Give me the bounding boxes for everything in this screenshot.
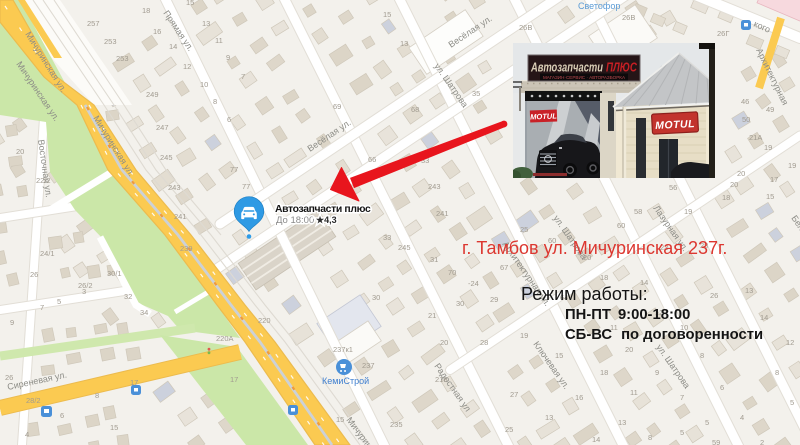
svg-text:9: 9: [10, 318, 14, 327]
svg-text:15: 15: [186, 0, 194, 7]
svg-text:КемиСтрой: КемиСтрой: [322, 376, 369, 386]
svg-text:MOTUL: MOTUL: [655, 118, 695, 132]
svg-text:9: 9: [226, 53, 230, 62]
svg-text:26Г: 26Г: [717, 29, 729, 38]
svg-text:68: 68: [411, 105, 419, 114]
svg-text:220А: 220А: [216, 334, 234, 343]
svg-text:46: 46: [741, 97, 749, 106]
svg-text:18: 18: [600, 368, 608, 377]
svg-text:3: 3: [82, 287, 86, 296]
svg-text:20: 20: [625, 345, 633, 354]
svg-text:218: 218: [435, 375, 448, 384]
svg-text:253: 253: [116, 54, 129, 63]
svg-text:241: 241: [174, 212, 187, 221]
svg-text:MOTUL: MOTUL: [530, 112, 557, 122]
svg-text:6: 6: [60, 411, 64, 420]
svg-text:18: 18: [142, 6, 150, 15]
svg-text:67: 67: [500, 263, 508, 272]
svg-text:59: 59: [712, 438, 720, 445]
svg-text:СБ-ВСпо договоренности: СБ-ВСпо договоренности: [565, 327, 763, 343]
svg-text:★4,3: ★4,3: [316, 215, 337, 225]
svg-text:9: 9: [655, 368, 659, 377]
svg-text:5: 5: [705, 418, 709, 427]
svg-text:28: 28: [480, 338, 488, 347]
svg-text:ПН-ПТ9:00-18:00: ПН-ПТ9:00-18:00: [565, 307, 690, 323]
svg-text:13: 13: [545, 413, 553, 422]
svg-text:21: 21: [428, 311, 436, 320]
svg-text:До 18:00: До 18:00: [276, 215, 314, 226]
svg-text:17: 17: [230, 375, 238, 384]
svg-text:25: 25: [505, 425, 513, 434]
svg-text:5: 5: [680, 428, 684, 437]
svg-text:8: 8: [700, 351, 704, 360]
svg-text:243: 243: [168, 183, 181, 192]
svg-text:15: 15: [555, 351, 563, 360]
svg-text:26: 26: [710, 291, 718, 300]
svg-text:12: 12: [183, 62, 191, 71]
svg-text:20: 20: [16, 147, 24, 156]
svg-text:10: 10: [200, 80, 208, 89]
svg-text:249: 249: [146, 90, 159, 99]
svg-text:6: 6: [227, 115, 231, 124]
svg-text:8: 8: [213, 97, 217, 106]
svg-text:11: 11: [215, 36, 223, 45]
svg-text:26В: 26В: [519, 23, 532, 32]
svg-text:4: 4: [25, 430, 29, 439]
svg-text:31: 31: [430, 255, 438, 264]
svg-text:69: 69: [333, 102, 341, 111]
svg-text:220: 220: [258, 316, 271, 325]
svg-text:г. Тамбов ул. Мичуринская 237г: г. Тамбов ул. Мичуринская 237г.: [462, 238, 727, 258]
svg-text:56: 56: [669, 183, 677, 192]
svg-text:5: 5: [57, 297, 61, 306]
svg-text:28/2: 28/2: [26, 396, 41, 405]
svg-text:-24: -24: [468, 279, 479, 288]
svg-text:237к1: 237к1: [333, 345, 353, 354]
svg-text:245: 245: [160, 153, 173, 162]
svg-text:66: 66: [368, 155, 376, 164]
svg-text:32: 32: [124, 292, 132, 301]
svg-text:19: 19: [520, 331, 528, 340]
svg-text:8: 8: [648, 433, 652, 442]
svg-text:7: 7: [40, 303, 44, 312]
svg-text:77: 77: [242, 182, 250, 191]
svg-text:МАГАЗИН·СЕРВИС · АВТОРАЗБОРКА: МАГАЗИН·СЕРВИС · АВТОРАЗБОРКА: [543, 75, 626, 80]
svg-text:60: 60: [617, 221, 625, 230]
svg-text:15: 15: [383, 10, 391, 19]
svg-text:20: 20: [737, 169, 745, 178]
svg-text:7: 7: [241, 72, 245, 81]
svg-text:30: 30: [372, 293, 380, 302]
svg-text:77: 77: [230, 165, 238, 174]
svg-text:49: 49: [766, 105, 774, 114]
svg-text:17: 17: [770, 175, 778, 184]
svg-text:13: 13: [400, 39, 408, 48]
svg-text:241: 241: [436, 209, 449, 218]
svg-text:18: 18: [600, 273, 608, 282]
svg-text:13: 13: [745, 286, 753, 295]
svg-text:245: 245: [398, 243, 411, 252]
svg-text:29: 29: [490, 295, 498, 304]
svg-text:26В: 26В: [622, 13, 635, 22]
svg-text:12: 12: [786, 338, 794, 347]
svg-text:239: 239: [180, 244, 193, 253]
svg-text:18: 18: [722, 193, 730, 202]
svg-text:11: 11: [630, 388, 638, 397]
svg-text:30/1: 30/1: [107, 269, 122, 278]
svg-text:2: 2: [760, 438, 764, 445]
svg-text:257: 257: [87, 19, 100, 28]
svg-text:20: 20: [730, 180, 738, 189]
svg-text:30: 30: [456, 299, 464, 308]
svg-text:237: 237: [362, 361, 375, 370]
svg-text:16: 16: [575, 393, 583, 402]
svg-text:4: 4: [740, 413, 744, 422]
svg-text:19: 19: [684, 207, 692, 216]
svg-text:33: 33: [383, 233, 391, 242]
svg-text:58: 58: [634, 207, 642, 216]
svg-text:5: 5: [790, 398, 794, 407]
svg-text:Режим работы:: Режим работы:: [521, 284, 648, 304]
svg-text:50: 50: [742, 115, 750, 124]
svg-text:25: 25: [520, 225, 528, 234]
svg-text:16: 16: [153, 27, 161, 36]
svg-text:7: 7: [680, 393, 684, 402]
svg-text:14: 14: [592, 435, 600, 444]
svg-text:Автозапчасти: Автозапчасти: [530, 60, 603, 75]
svg-text:14: 14: [169, 42, 177, 51]
svg-text:19: 19: [788, 161, 796, 170]
svg-text:21А: 21А: [749, 133, 762, 142]
svg-text:35: 35: [472, 89, 480, 98]
svg-text:253: 253: [104, 37, 117, 46]
svg-text:26: 26: [5, 373, 13, 382]
svg-text:8: 8: [775, 368, 779, 377]
svg-text:13: 13: [202, 19, 210, 28]
svg-text:6: 6: [720, 383, 724, 392]
svg-text:22/2: 22/2: [36, 176, 51, 185]
svg-text:19: 19: [764, 143, 772, 152]
svg-text:Автозапчасти плюс: Автозапчасти плюс: [275, 204, 371, 215]
svg-text:27: 27: [510, 390, 518, 399]
svg-text:26: 26: [30, 270, 38, 279]
svg-text:243: 243: [428, 182, 441, 191]
svg-text:247: 247: [156, 123, 169, 132]
svg-text:15: 15: [110, 423, 118, 432]
svg-text:24/1: 24/1: [40, 249, 55, 258]
svg-text:Светофор: Светофор: [578, 1, 620, 11]
svg-text:34: 34: [140, 308, 148, 317]
svg-text:ПЛЮС: ПЛЮС: [606, 61, 638, 75]
svg-text:8: 8: [95, 391, 99, 400]
svg-text:15: 15: [766, 192, 774, 201]
svg-text:20: 20: [440, 338, 448, 347]
svg-text:15: 15: [336, 415, 344, 424]
svg-text:13: 13: [618, 418, 626, 427]
svg-text:235: 235: [390, 420, 403, 429]
svg-text:14: 14: [760, 313, 768, 322]
svg-text:70: 70: [448, 268, 456, 277]
